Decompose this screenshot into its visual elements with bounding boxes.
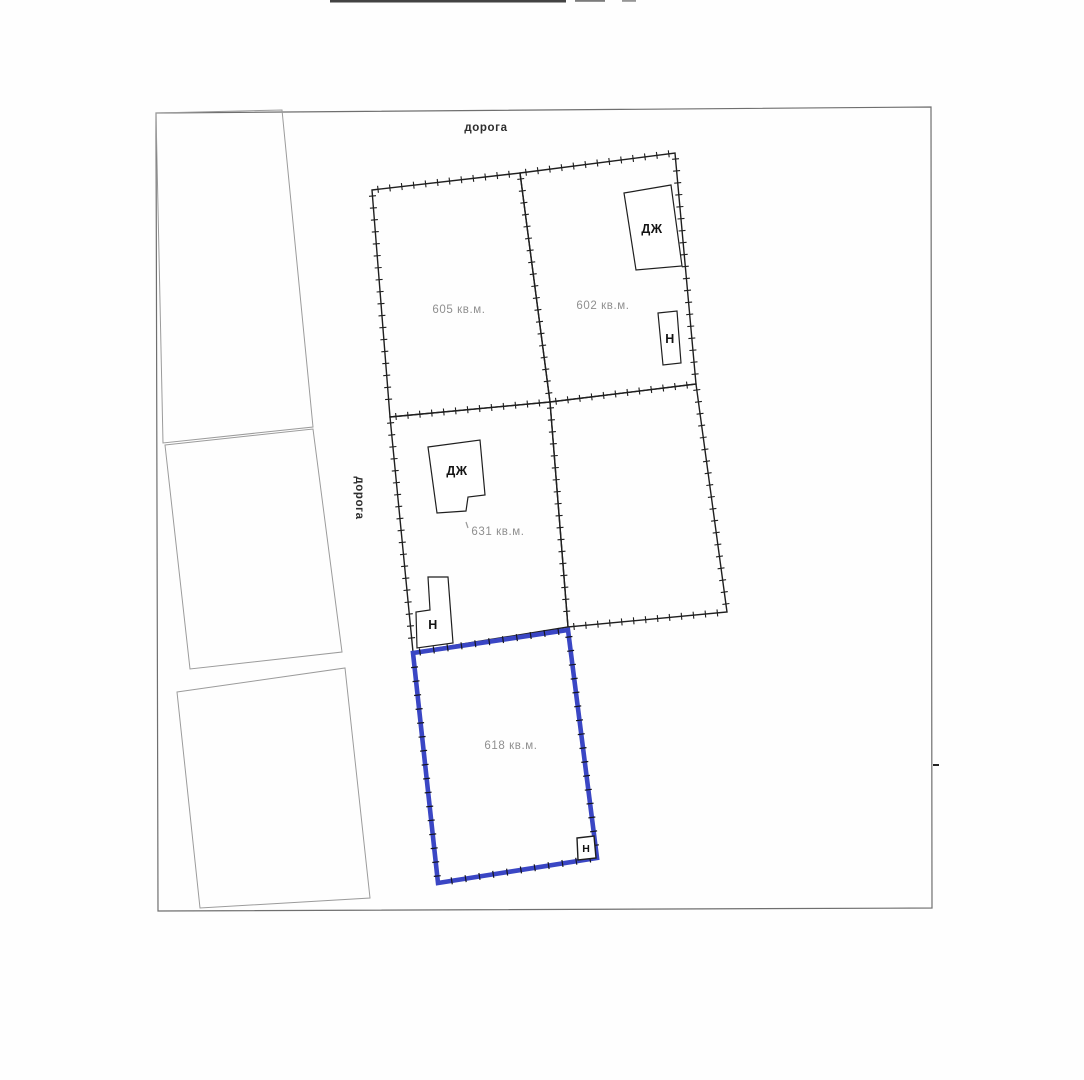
survey-tick	[372, 232, 379, 233]
survey-tick	[676, 207, 683, 208]
survey-tick	[374, 256, 381, 257]
survey-tick	[633, 155, 634, 162]
survey-tick	[706, 485, 713, 486]
survey-tick	[392, 470, 399, 471]
survey-tick	[537, 167, 538, 174]
survey-tick	[461, 642, 462, 649]
survey-tick	[573, 692, 580, 693]
survey-tick	[455, 407, 456, 414]
survey-tick	[425, 792, 432, 793]
survey-tick	[527, 250, 534, 251]
survey-tick	[705, 473, 712, 474]
survey-tick	[554, 491, 561, 492]
survey-tick	[380, 339, 387, 340]
survey-tick	[559, 551, 566, 552]
survey-tick	[531, 286, 538, 287]
survey-tick	[528, 262, 535, 263]
survey-tick	[413, 681, 420, 682]
survey-tick	[525, 238, 532, 239]
survey-tick	[695, 401, 702, 402]
survey-tick	[371, 220, 378, 221]
survey-tick	[407, 626, 414, 627]
survey-tick	[411, 667, 418, 668]
survey-tick	[578, 734, 585, 735]
survey-tick	[390, 185, 391, 192]
survey-tick	[401, 183, 402, 190]
neighbour-parcel-2	[165, 429, 342, 669]
survey-tick	[693, 390, 700, 391]
survey-tick	[384, 387, 391, 388]
survey-tick	[394, 494, 401, 495]
survey-tick	[375, 268, 382, 269]
building-n-middle-label: Н	[428, 618, 438, 632]
building-dzh-upper-label: ДЖ	[641, 222, 662, 236]
survey-tick	[591, 393, 592, 400]
survey-tick	[583, 775, 590, 776]
page-border	[156, 107, 932, 911]
survey-tick	[719, 580, 726, 581]
survey-tick	[400, 554, 407, 555]
survey-tick	[535, 309, 542, 310]
scan-dash-right	[933, 764, 939, 766]
scan-artifact-top-bar	[330, 0, 566, 3]
survey-tick	[678, 218, 685, 219]
survey-tick	[656, 152, 657, 159]
scan-artifact-top-dash2	[622, 0, 636, 2]
survey-tick	[385, 399, 392, 400]
survey-tick	[517, 179, 524, 180]
survey-tick	[685, 302, 692, 303]
survey-tick	[419, 649, 420, 656]
survey-tick	[621, 157, 622, 164]
survey-tick	[681, 254, 688, 255]
survey-tick	[515, 402, 516, 409]
survey-tick	[393, 482, 400, 483]
survey-tick	[497, 172, 498, 179]
survey-tick	[679, 230, 686, 231]
survey-tick	[633, 617, 634, 624]
survey-tick	[711, 520, 718, 521]
survey-tick	[539, 345, 546, 346]
survey-tick	[713, 532, 720, 533]
survey-tick	[569, 664, 576, 665]
survey-tick	[718, 568, 725, 569]
survey-tick	[610, 620, 611, 627]
survey-tick	[428, 820, 435, 821]
parcel-618-area-label: 618 кв.м.	[484, 740, 537, 752]
survey-tick	[383, 375, 390, 376]
survey-tick	[603, 392, 604, 399]
survey-tick	[645, 153, 646, 160]
survey-tick	[419, 737, 426, 738]
survey-tick	[399, 542, 406, 543]
survey-tick	[376, 279, 383, 280]
survey-tick	[503, 403, 504, 410]
survey-tick	[396, 413, 397, 420]
survey-tick	[585, 789, 592, 790]
survey-tick	[691, 362, 698, 363]
parcel-631-area-label: 631 кв.м.	[471, 526, 524, 538]
survey-tick	[693, 612, 694, 619]
survey-tick	[461, 176, 462, 183]
survey-tick	[559, 563, 566, 564]
road-label-left: дорога	[353, 476, 365, 519]
building-n-upper-label: Н	[665, 332, 675, 346]
survey-tick	[580, 748, 587, 749]
survey-tick	[373, 244, 380, 245]
survey-tick	[708, 497, 715, 498]
survey-tick	[391, 459, 398, 460]
survey-tick	[395, 506, 402, 507]
survey-tick	[698, 425, 705, 426]
survey-tick	[520, 202, 527, 203]
survey-tick	[533, 298, 540, 299]
scan-artifact-top-dash	[575, 0, 605, 2]
road-label-top: дорога	[464, 122, 507, 134]
survey-tick	[668, 150, 669, 157]
survey-tick	[447, 644, 448, 651]
survey-tick	[551, 456, 558, 457]
survey-tick	[451, 877, 452, 884]
survey-tick	[549, 166, 550, 173]
survey-tick	[567, 650, 574, 651]
survey-tick	[507, 869, 508, 876]
survey-tick	[675, 195, 682, 196]
survey-tick	[585, 161, 586, 168]
survey-tick	[545, 393, 552, 394]
parcel-unlabeled-right	[550, 384, 727, 627]
survey-tick	[479, 405, 480, 412]
survey-tick	[387, 423, 394, 424]
survey-tick	[571, 678, 578, 679]
survey-tick	[716, 556, 723, 557]
survey-tick	[431, 848, 438, 849]
survey-tick	[687, 382, 688, 389]
parcel-618-highlighted	[413, 630, 597, 883]
survey-tick	[703, 461, 710, 462]
neighbour-parcel-3	[177, 668, 370, 908]
survey-tick	[432, 862, 439, 863]
survey-tick	[544, 381, 551, 382]
survey-tick	[609, 158, 610, 165]
survey-tick	[588, 817, 595, 818]
survey-tick	[621, 618, 622, 625]
survey-tick	[408, 412, 409, 419]
survey-tick	[590, 831, 597, 832]
survey-tick	[369, 196, 376, 197]
survey-tick	[539, 400, 540, 407]
survey-tick	[553, 480, 560, 481]
survey-tick	[547, 408, 554, 409]
survey-tick	[576, 858, 577, 865]
survey-tick	[417, 723, 424, 724]
survey-tick	[573, 163, 574, 170]
survey-tick	[672, 159, 679, 160]
survey-tick	[378, 186, 379, 193]
survey-tick	[722, 604, 729, 605]
survey-tick	[405, 602, 412, 603]
survey-tick	[556, 398, 557, 405]
survey-tick	[710, 508, 717, 509]
survey-tick	[485, 174, 486, 181]
survey-tick	[669, 614, 670, 621]
survey-tick	[406, 614, 413, 615]
survey-tick	[581, 762, 588, 763]
survey-tick	[700, 437, 707, 438]
survey-tick	[491, 404, 492, 411]
survey-tick	[717, 609, 718, 616]
survey-tick	[370, 208, 377, 209]
survey-tick	[562, 599, 569, 600]
survey-tick	[538, 333, 545, 334]
survey-tick	[542, 369, 549, 370]
survey-tick	[519, 190, 526, 191]
survey-tick	[561, 587, 568, 588]
survey-tick	[389, 447, 396, 448]
survey-tick	[548, 420, 555, 421]
survey-tick	[437, 179, 438, 186]
survey-tick	[687, 326, 694, 327]
survey-tick	[402, 578, 409, 579]
survey-tick	[567, 396, 568, 403]
plan-drawing: ДЖ Н ДЖ Н Н 605 кв.м. 602 кв.м. 631 кв.м…	[0, 0, 1084, 1080]
survey-tick	[681, 613, 682, 620]
survey-tick	[520, 867, 521, 874]
survey-tick	[587, 803, 594, 804]
survey-tick	[527, 401, 528, 408]
building-n-highlighted-label: Н	[582, 843, 590, 855]
survey-tick	[598, 621, 599, 628]
survey-tick	[558, 539, 565, 540]
building-n-middle	[416, 577, 453, 648]
survey-tick	[714, 544, 721, 545]
survey-tick	[576, 720, 583, 721]
survey-tick	[562, 860, 563, 867]
survey-tick	[377, 291, 384, 292]
survey-tick	[429, 834, 436, 835]
survey-tick	[683, 278, 690, 279]
survey-tick	[673, 171, 680, 172]
survey-tick	[689, 350, 696, 351]
survey-tick	[530, 274, 537, 275]
survey-tick	[449, 178, 450, 185]
survey-tick	[401, 566, 408, 567]
parcel-605	[372, 173, 550, 417]
survey-tick	[579, 395, 580, 402]
survey-tick	[434, 876, 441, 877]
survey-tick	[639, 388, 640, 395]
survey-tick	[674, 183, 681, 184]
survey-tick	[524, 226, 531, 227]
survey-tick	[555, 503, 562, 504]
survey-tick	[425, 180, 426, 187]
survey-tick	[682, 266, 689, 267]
cadastral-plan-scan: ДЖ Н ДЖ Н Н 605 кв.м. 602 кв.м. 631 кв.м…	[0, 0, 1084, 1080]
survey-tick	[416, 709, 423, 710]
survey-tick	[509, 171, 510, 178]
survey-tick	[382, 363, 389, 364]
building-dzh-middle-label: ДЖ	[446, 464, 467, 478]
survey-tick	[615, 391, 616, 398]
survey-tick	[397, 518, 404, 519]
survey-tick	[432, 410, 433, 417]
survey-tick	[378, 303, 385, 304]
survey-tick	[408, 638, 415, 639]
survey-tick	[627, 389, 628, 396]
neighbour-parcel-1	[156, 110, 313, 443]
survey-tick	[560, 575, 567, 576]
survey-tick	[645, 616, 646, 623]
survey-tick	[663, 385, 664, 392]
survey-tick	[684, 290, 691, 291]
survey-tick	[379, 315, 386, 316]
survey-tick	[549, 432, 556, 433]
survey-tick	[422, 764, 429, 765]
survey-tick	[522, 214, 529, 215]
parcel-605-area-label: 605 кв.м.	[432, 304, 485, 316]
survey-tick	[423, 778, 430, 779]
survey-tick	[426, 806, 433, 807]
survey-tick	[420, 750, 427, 751]
survey-tick	[541, 357, 548, 358]
survey-tick	[688, 338, 695, 339]
survey-tick	[680, 242, 687, 243]
survey-tick	[550, 444, 557, 445]
survey-tick	[597, 160, 598, 167]
survey-tick	[433, 647, 434, 654]
survey-tick	[443, 409, 444, 416]
survey-tick	[536, 321, 543, 322]
survey-tick	[398, 530, 405, 531]
survey-tick	[701, 449, 708, 450]
survey-tick	[692, 374, 699, 375]
scan-speck	[466, 522, 468, 528]
survey-tick	[381, 351, 388, 352]
survey-tick	[420, 411, 421, 418]
survey-tick	[388, 435, 395, 436]
survey-tick	[561, 164, 562, 171]
survey-tick	[556, 515, 563, 516]
survey-tick	[526, 169, 527, 176]
survey-tick	[586, 622, 587, 629]
survey-tick	[465, 875, 466, 882]
survey-tick	[675, 383, 676, 390]
survey-tick	[467, 406, 468, 413]
survey-tick	[565, 637, 572, 638]
survey-tick	[563, 611, 570, 612]
survey-tick	[651, 386, 652, 393]
survey-tick	[574, 623, 575, 630]
survey-tick	[721, 592, 728, 593]
survey-tick	[473, 175, 474, 182]
survey-tick	[705, 611, 706, 618]
survey-tick	[697, 413, 704, 414]
survey-tick	[686, 314, 693, 315]
survey-tick	[413, 182, 414, 189]
survey-tick	[404, 590, 411, 591]
survey-tick	[414, 695, 421, 696]
survey-tick	[552, 468, 559, 469]
parcel-602-area-label: 602 кв.м.	[576, 300, 629, 312]
survey-tick	[657, 615, 658, 622]
survey-tick	[379, 327, 386, 328]
survey-tick	[574, 706, 581, 707]
survey-tick	[557, 527, 564, 528]
